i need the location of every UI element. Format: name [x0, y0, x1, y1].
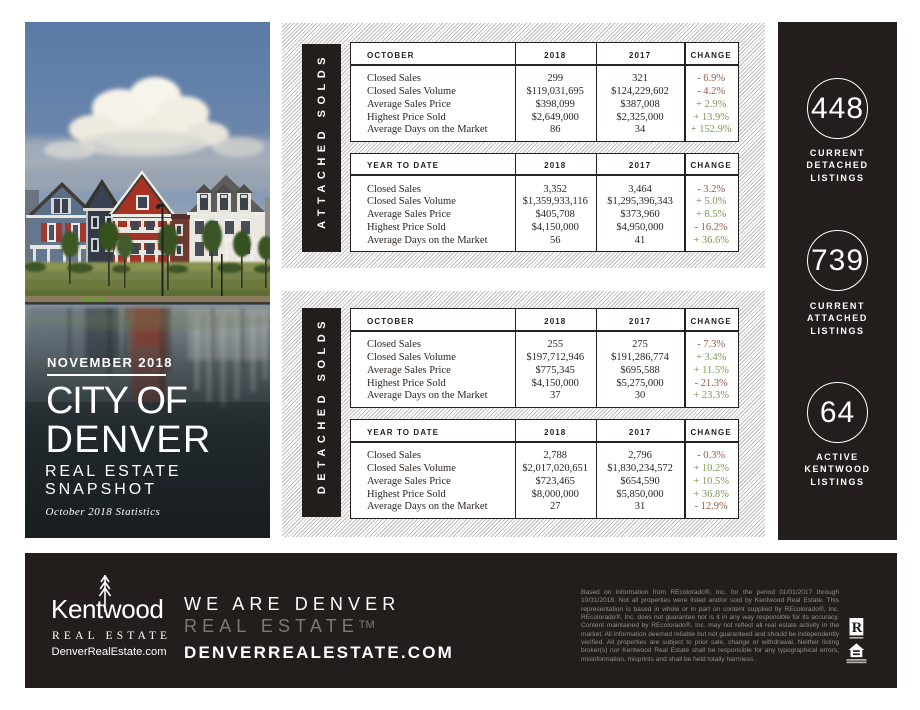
svg-text:R: R [852, 620, 863, 636]
